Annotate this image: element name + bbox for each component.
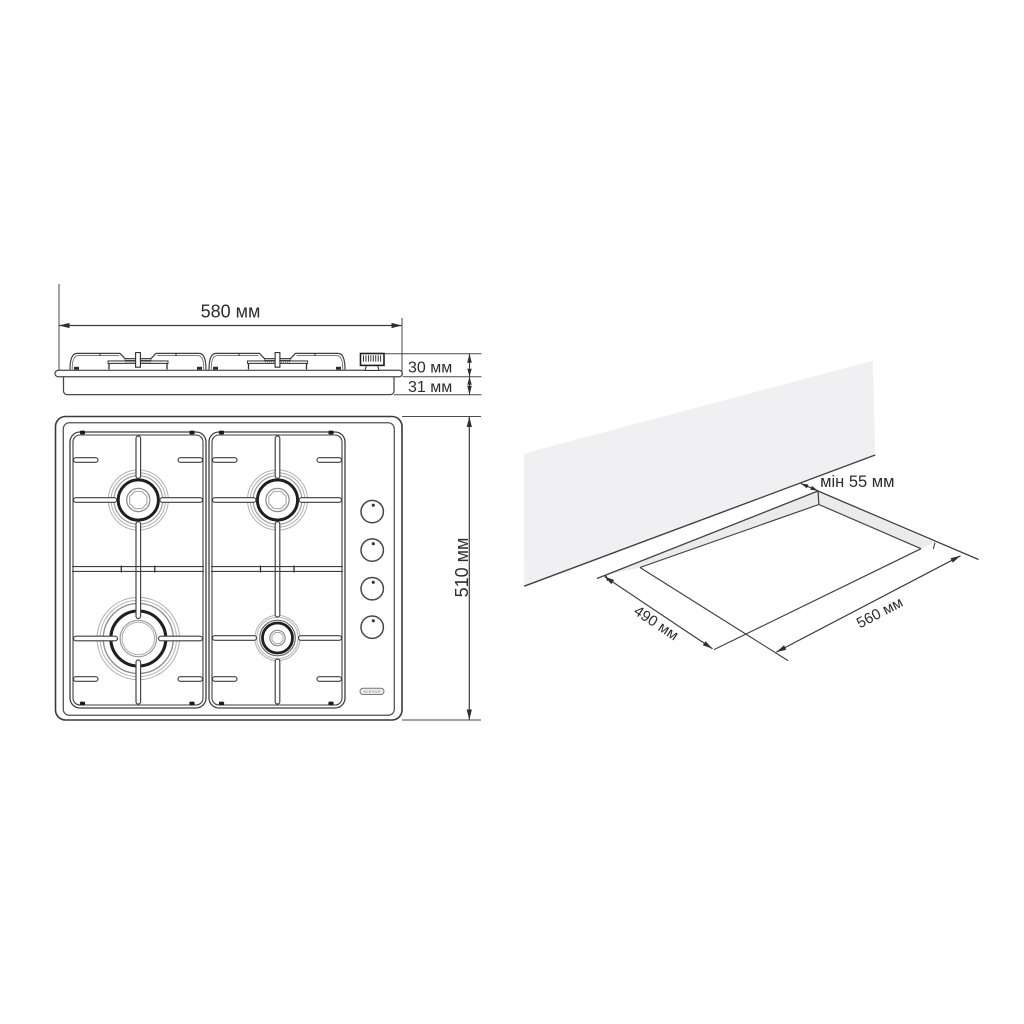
svg-text:ELEYUS: ELEYUS bbox=[364, 689, 381, 694]
svg-text:мін 55 мм: мін 55 мм bbox=[820, 473, 894, 491]
svg-text:30 мм: 30 мм bbox=[408, 360, 452, 377]
svg-text:31 мм: 31 мм bbox=[408, 379, 452, 396]
svg-text:580 мм: 580 мм bbox=[201, 301, 261, 321]
svg-text:510 мм: 510 мм bbox=[452, 538, 472, 598]
